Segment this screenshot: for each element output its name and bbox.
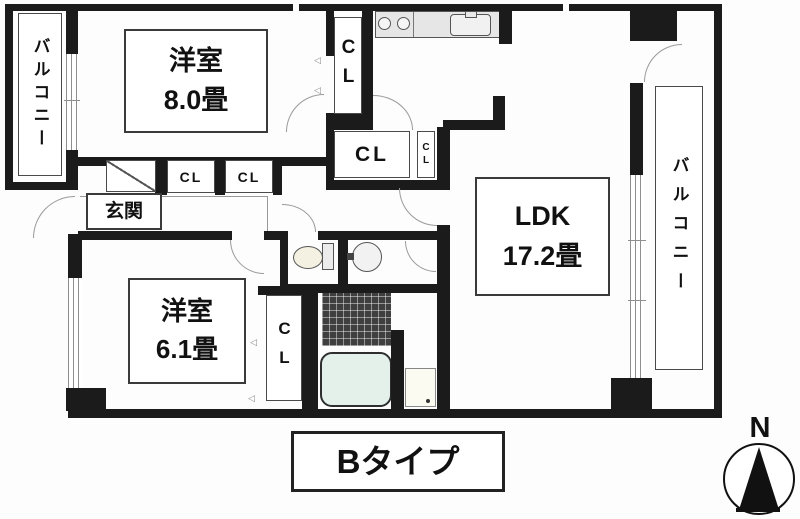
wall-post [155,157,167,195]
fold-door-mark: ◁ [314,56,321,65]
bedroom-small-door-arc [230,240,264,274]
compass-circle [723,443,795,515]
ldk-label-box: LDK 17.2畳 [475,177,610,296]
wall-bath-left [302,289,318,411]
fold-door-mark: ◁ [250,338,257,347]
bathtub [320,352,392,407]
washroom-door-arc [405,241,436,272]
closet-tall-box: CL [334,17,362,114]
closet-hall-label: CL [355,143,389,167]
compass-needle-icon [725,445,793,513]
window-tick [628,240,646,241]
wall-left-lower [68,234,82,278]
wall-balcony-right-seg [630,83,643,175]
closet-genkan-b-box: CL [225,160,273,193]
bedroom-large-name: 洋室 [169,42,223,81]
wall-t-stub [493,96,505,122]
closet-tall-label: CL [337,37,359,95]
bedroom-large-label-box: 洋室 8.0畳 [124,29,268,133]
window-tick [64,100,80,101]
wall-toilet-divider [338,234,348,286]
bathroom-tile-floor [322,293,391,346]
wall-hall-ldk-lower [437,225,450,409]
window-ldk-balcony [630,175,644,378]
genkan-label: 玄関 [105,198,143,226]
balcony-left-label-box: バルコニー [18,13,62,176]
wall-joint [563,4,569,11]
bedroom-small-size: 6.1畳 [156,331,218,369]
wall-toilet-left [280,238,288,286]
bedroom-large-door-arc [286,94,324,132]
stove-burner-icon [397,17,410,30]
wall-right [714,4,722,418]
window-bedroom-small [68,278,82,388]
closet-bedroom-small-label: CL [274,319,294,377]
balcony-door-arc [644,44,682,82]
closet-hall-small-label: CL [421,142,432,168]
basin-faucet [347,253,354,260]
closet-genkan-b-label: CL [238,169,261,185]
wall-post [273,157,282,195]
genkan-label-box: 玄関 [86,193,162,230]
toilet-door-arc [282,204,316,232]
wall-balcony-left [5,4,13,190]
bedroom-small-name: 洋室 [161,293,213,331]
wash-basin [352,242,382,272]
closet-hall-box: CL [334,131,410,178]
kitchen-faucet [465,11,477,18]
toilet-tank [322,243,334,270]
wall-hall-ldk-upper [437,127,450,190]
shoe-cabinet [106,160,156,192]
wall-bath-right [391,330,404,410]
balcony-right-label: バルコニー [667,156,692,301]
wall-balcony-inner-bottom [66,150,78,190]
wall-joint [293,4,299,11]
compass-north-label: N [743,412,777,444]
closet-hall-small-box: CL [417,131,435,178]
wall-bottom-right-block [611,378,652,411]
closet-genkan-a-box: CL [167,160,215,193]
kitchen-counter-divider [413,12,414,37]
wall-kitchen-right [499,4,512,44]
kitchen-corridor-door-arc [373,95,413,130]
wall-closet-tall-right [362,4,373,130]
balcony-right-label-box: バルコニー [655,86,703,370]
stove-burner-icon [378,17,391,30]
window-tick [628,300,646,301]
entrance-door-arc [33,196,75,238]
ldk-size: 17.2畳 [503,237,583,276]
closet-bedroom-small-box: CL [266,295,302,401]
wall-corner-bottom-left [66,388,106,411]
washing-machine [405,368,436,407]
type-label-box: Bタイプ [291,431,505,492]
toilet-bowl [293,246,323,269]
fold-door-mark: ◁ [314,86,321,95]
balcony-left-label: バルコニー [28,37,53,152]
ldk-door-arc [399,188,437,226]
type-label: Bタイプ [337,438,460,486]
wall-closet-tall-left [326,4,334,56]
ldk-name: LDK [515,197,571,236]
floor-plan: バルコニー 洋室 8.0畳 CL ◁ ◁ CL CL CL [0,0,800,519]
closet-genkan-a-label: CL [180,169,203,185]
wall-balcony-inner-top [66,4,78,54]
bedroom-large-size: 8.0畳 [164,81,229,120]
fold-door-mark: ◁ [248,394,255,403]
window-balcony-left [66,54,78,150]
bedroom-small-label-box: 洋室 6.1畳 [128,278,246,384]
wall-top-right-block [630,4,677,41]
washing-machine-drain [426,399,430,403]
compass-baseline [736,508,780,512]
wall-post [215,159,225,195]
wall-bedroom-small-top [78,231,232,240]
